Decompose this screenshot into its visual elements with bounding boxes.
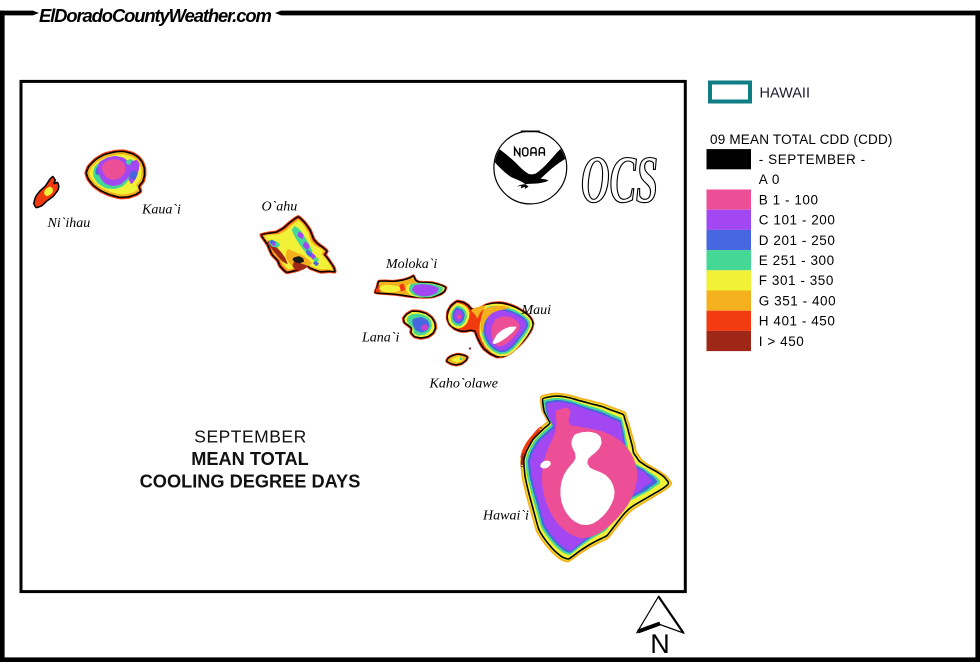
svg-text:Kaua`i: Kaua`i [141, 203, 181, 218]
svg-text:B 1 - 100: B 1 - 100 [759, 192, 819, 207]
svg-text:HAWAII: HAWAII [760, 86, 810, 102]
svg-text:A 0: A 0 [759, 172, 780, 187]
svg-text:C 101 - 200: C 101 - 200 [759, 213, 836, 228]
svg-text:I > 450: I > 450 [759, 334, 805, 349]
svg-text:- SEPTEMBER -: - SEPTEMBER - [759, 152, 866, 167]
svg-text:H 401 - 450: H 401 - 450 [759, 314, 836, 329]
svg-text:E 251 - 300: E 251 - 300 [759, 253, 835, 268]
svg-text:COOLING DEGREE DAYS: COOLING DEGREE DAYS [140, 472, 361, 492]
svg-text:D 201 - 250: D 201 - 250 [759, 233, 836, 248]
svg-text:Maui: Maui [521, 303, 552, 318]
svg-text:G 351 - 400: G 351 - 400 [759, 293, 836, 308]
svg-text:F 301 - 350: F 301 - 350 [759, 273, 834, 288]
svg-text:Hawai`i: Hawai`i [482, 509, 529, 524]
svg-text:N: N [650, 629, 670, 659]
svg-text:Kaho`olawe: Kaho`olawe [429, 377, 498, 392]
svg-text:MEAN TOTAL: MEAN TOTAL [191, 449, 309, 469]
svg-text:Moloka`i: Moloka`i [385, 257, 437, 272]
svg-text:O`ahu: O`ahu [262, 200, 298, 215]
svg-text:SEPTEMBER: SEPTEMBER [194, 427, 306, 447]
svg-text:ElDoradoCountyWeather.com: ElDoradoCountyWeather.com [39, 5, 271, 26]
svg-text:Ni`ihau: Ni`ihau [47, 216, 91, 231]
svg-text:09 MEAN TOTAL CDD (CDD): 09 MEAN TOTAL CDD (CDD) [710, 132, 893, 147]
svg-text:Lana`i: Lana`i [361, 331, 399, 346]
